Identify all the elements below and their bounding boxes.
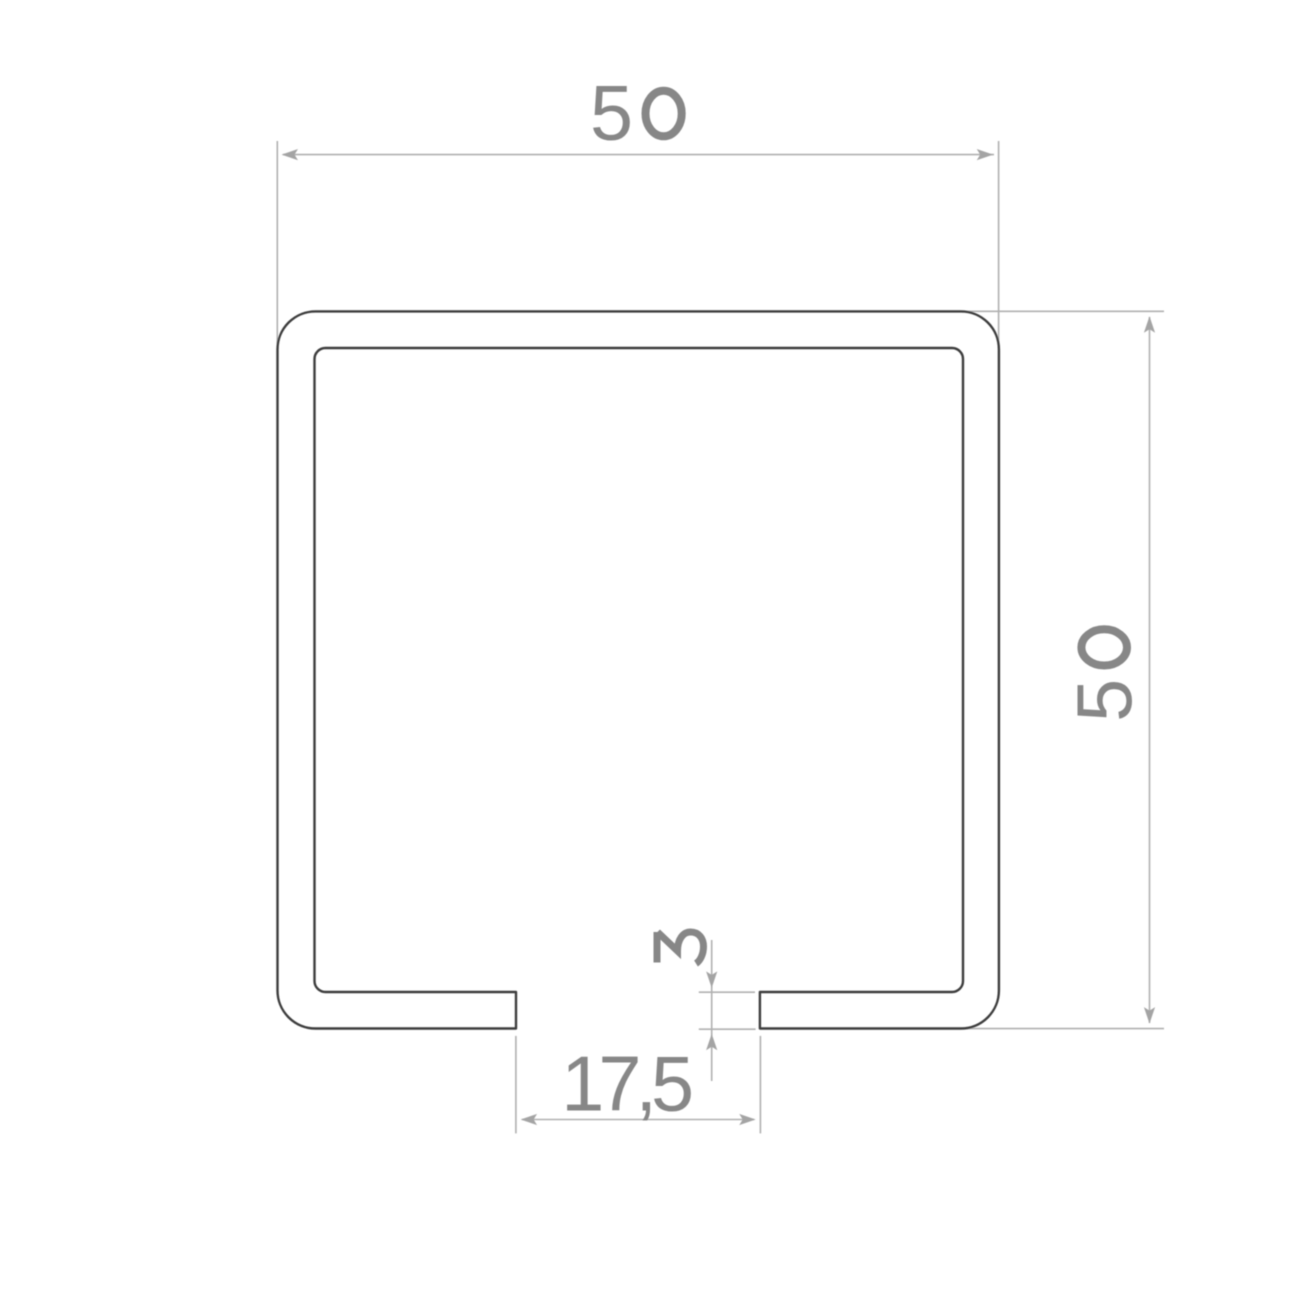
- svg-text:17,5: 17,5: [561, 1041, 691, 1127]
- svg-text:5: 5: [590, 71, 633, 157]
- svg-text:5: 5: [1062, 679, 1148, 722]
